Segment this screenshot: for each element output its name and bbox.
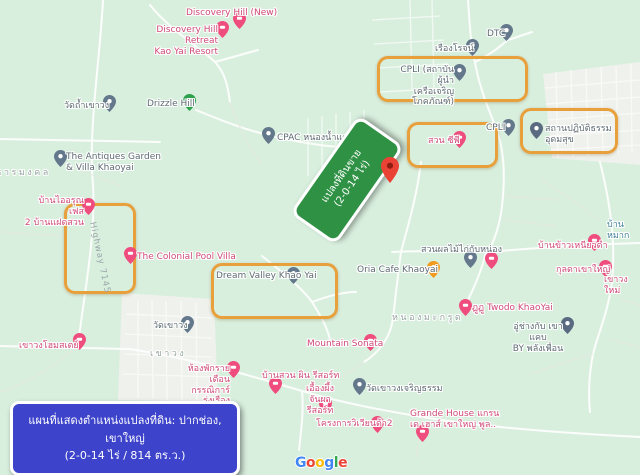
- meditation-center-pin[interactable]: [530, 122, 543, 139]
- drizzle-hill-label: Drizzle Hill: [147, 99, 195, 110]
- cpli-institute-label: CPLI (สถาบันผู้นำ เครือเจริญโภคภัณฑ์): [396, 65, 454, 108]
- colonial-pool-villa-label: The Colonial Pool Villa: [137, 252, 236, 263]
- meditation-center-label: สถานปฏิบัติธรรม อุดมสุข: [545, 124, 612, 146]
- wat-khao-wong-charoen-tham-pin[interactable]: [353, 378, 366, 395]
- antiques-garden-label: The Antiques Garden & Villa Khaoyai: [66, 152, 161, 174]
- google-logo-letter: o: [306, 455, 315, 471]
- viviana-2-label: โครงการวิเวียนด้า2: [316, 419, 393, 430]
- au-chang-label: อู่ช่างกับ เขาแคบ BY พลังเพื่อน: [512, 322, 564, 354]
- baan-ai-arun-label: บ้านไออรุณ เฟส 2 บ้านแฝดสวน: [24, 196, 84, 228]
- cpli-institute-pin[interactable]: [453, 64, 466, 81]
- wat-khao-wong-charoen-tham-label: วัดเขาวงเจริญธรรม: [366, 384, 443, 395]
- kunlada-khaoyai-label: กุลดาเขาใหญ่: [556, 265, 610, 276]
- map-canvas[interactable]: Discovery Hill (New)Discovery Hill Retre…: [0, 0, 640, 475]
- dtc-label: DTC: [487, 29, 505, 40]
- discovery-hill-new-label: Discovery Hill (New): [186, 8, 277, 19]
- baan-suan-phin-label: บ้านสวน ผิน รีสอร์ท: [262, 371, 339, 382]
- suan-cp-label: สวน ซีพี: [428, 136, 460, 147]
- caption-line2: (2-0-14 ไร่ / 814 ตร.ว.): [18, 447, 232, 465]
- oria-cafe-label: Oria Cafe Khaoyai: [357, 265, 438, 276]
- cpac-nong-nam-daeng-pin[interactable]: [262, 127, 275, 144]
- google-logo-letter: o: [315, 455, 324, 471]
- discovery-hill-retreat-label: Discovery Hill Retreat Kao Yai Resort: [146, 25, 218, 57]
- baan-khao-niao-dam-label: บ้านข้าวเหนียวดำ: [538, 241, 608, 252]
- google-logo[interactable]: Google: [295, 455, 347, 471]
- khao-wong-mai-label: เขาวงใหม่: [604, 275, 640, 297]
- wat-tham-khao-wong-label: วัดถ้ำเขาวง: [64, 101, 109, 112]
- wat-khao-wong-label: วัดเขาวง: [153, 321, 188, 332]
- rueang-rot-label: เรืองโรจน์: [435, 44, 474, 55]
- mountain-sonata-label: Mountain Sonata: [307, 339, 383, 350]
- caption-line1: แผนที่แสดงตำแหน่งแปลงที่ดิน: ปากช่อง, เข…: [18, 412, 232, 447]
- antiques-garden-pin[interactable]: [54, 150, 67, 167]
- ueang-phueng-label: เอื้องผึ้ง จันผารีสอร์ท: [298, 384, 342, 416]
- cpli-label: CPLI: [486, 123, 505, 134]
- dream-valley-label: Dream Valley Khao Yai: [216, 271, 317, 282]
- khao-wong-homestay-label: เขาวงโฮมสเตย์: [19, 341, 79, 352]
- map-caption: แผนที่แสดงตำแหน่งแปลงที่ดิน: ปากช่อง, เข…: [10, 401, 240, 475]
- ban-mak-label: บ้านหมาก: [607, 220, 640, 242]
- than-mongkhon-label: ธารมงคล: [0, 168, 51, 179]
- google-logo-letter: e: [338, 455, 347, 471]
- property-location-pin[interactable]: [381, 157, 399, 183]
- suan-phonlamai-label: สวนผลไม้ไก่กับหน่อง: [421, 245, 502, 256]
- colonial-pool-villa-pin[interactable]: [124, 247, 137, 264]
- grande-house-label: Grande House แกรน เด เฮาส์ เขาใหญ่ พูล..: [410, 409, 499, 431]
- nong-makrut-label: หนองมะกรูด: [392, 313, 463, 324]
- twodo-khaoyai-label: ฏูฏู Twodo KhaoYai: [472, 303, 553, 314]
- khao-wong-area-label: เขาวง: [150, 349, 186, 360]
- google-logo-letter: G: [295, 455, 306, 471]
- google-logo-letter: g: [324, 455, 334, 471]
